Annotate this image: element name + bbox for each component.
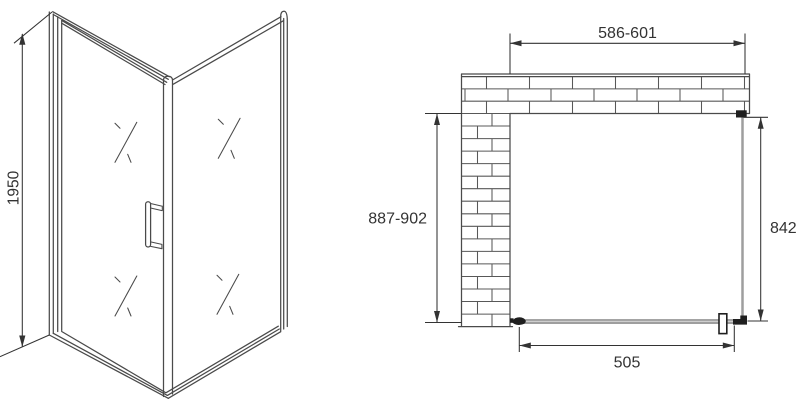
wall-mount-bracket [736,110,747,117]
arrowhead-up [434,114,440,126]
dimension-height: 1950 [0,12,52,357]
extension-line [519,326,734,353]
dim-label-top-width: 586-601 [598,25,657,42]
dimension-side-depth: 887-902 [368,114,461,323]
door-handle-bar [146,202,151,247]
door-handle-plan [719,314,727,334]
arrowhead-left [519,343,531,349]
corner-post [164,76,173,396]
arrowhead-down [434,311,440,323]
glass-reflection-mark [115,276,137,316]
extension-line [425,114,462,323]
drawing-canvas: 1950 586-601 [0,0,800,403]
corner-bracket [733,316,747,325]
dim-label-panel-depth: 842 [770,220,797,237]
dim-label-height: 1950 [6,170,23,205]
door-panel [510,314,747,334]
dimension-panel-depth: 842 [744,117,797,321]
glass-reflection-mark [217,274,239,314]
plan-view: 586-601 887-902 842 505 [368,25,797,372]
side-panel-top-rail [173,17,284,85]
perspective-view: 1950 [0,11,287,398]
door-hinge [512,317,526,325]
door-handle-arms [151,204,163,249]
brick-wall [459,74,750,327]
door-bottom-rail [49,332,168,399]
arrowhead-left [510,40,522,46]
arrowhead-down [758,310,764,322]
dimension-top-width: 586-601 [510,25,745,74]
arrowhead-right [723,343,735,349]
glass-reflection-mark [218,118,240,158]
arrowhead-right [734,40,746,46]
dim-label-door-width: 505 [614,355,641,372]
door-handle [146,202,163,249]
extension-line [744,117,769,321]
dimension-door-width: 505 [519,326,734,372]
door-top-rail [53,12,170,85]
side-panel-wall-post [281,11,288,332]
arrowhead-down [19,336,25,348]
shower-enclosure-technical-drawing: 1950 586-601 [0,0,800,403]
glass-reflection-mark [115,122,137,162]
hinge-wall-profile [49,12,61,335]
arrowhead-up [758,117,764,129]
dim-label-side-depth: 887-902 [368,211,427,228]
side-panel-bottom-rail [166,326,280,398]
